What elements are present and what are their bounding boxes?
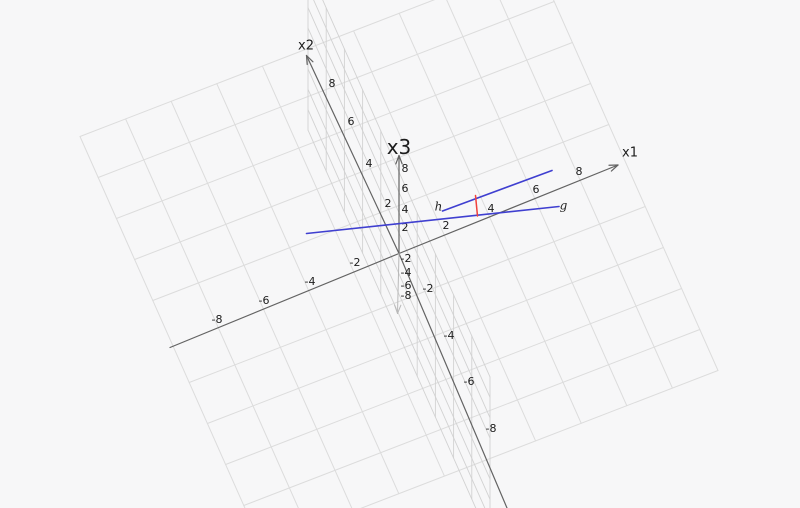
- tick-label-x1: -2: [350, 256, 361, 269]
- tick-label-x2: 8: [329, 77, 336, 90]
- tick-label-x3: -2: [401, 252, 412, 265]
- tick-label-x2: -8: [486, 422, 497, 435]
- tick-label-x1: -4: [305, 275, 316, 288]
- axis-label-x2: x2: [298, 39, 314, 54]
- tick-label-x2: -4: [444, 329, 455, 342]
- tick-label-x2: 6: [348, 115, 355, 128]
- plot-3d-svg: 2468-2-4-6-8x12468-2-4-6-8x22468-2-4-6-8…: [0, 0, 800, 508]
- tick-label-x1: -6: [259, 294, 270, 307]
- axis-label-x1: x1: [622, 146, 638, 161]
- line-label-g: g: [560, 199, 568, 213]
- axis-label-x3: x3: [387, 135, 412, 159]
- tick-label-x1: 6: [533, 183, 540, 196]
- tick-label-x2: -6: [464, 375, 475, 388]
- tick-label-x3: -8: [401, 289, 412, 302]
- tick-label-x2: -2: [423, 282, 434, 295]
- tick-label-x2: 2: [385, 197, 392, 210]
- tick-label-x3: -4: [401, 266, 412, 279]
- tick-label-x3: 4: [402, 203, 409, 216]
- tick-label-x1: -8: [212, 313, 223, 326]
- plot-3d-canvas[interactable]: 2468-2-4-6-8x12468-2-4-6-8x22468-2-4-6-8…: [0, 0, 800, 508]
- line-label-h: h: [435, 200, 443, 214]
- tick-label-x3: 6: [402, 182, 409, 195]
- tick-label-x2: 4: [366, 157, 373, 170]
- tick-label-x1: 2: [443, 219, 450, 232]
- tick-label-x3: 8: [402, 162, 409, 175]
- tick-label-x1: 8: [576, 165, 583, 178]
